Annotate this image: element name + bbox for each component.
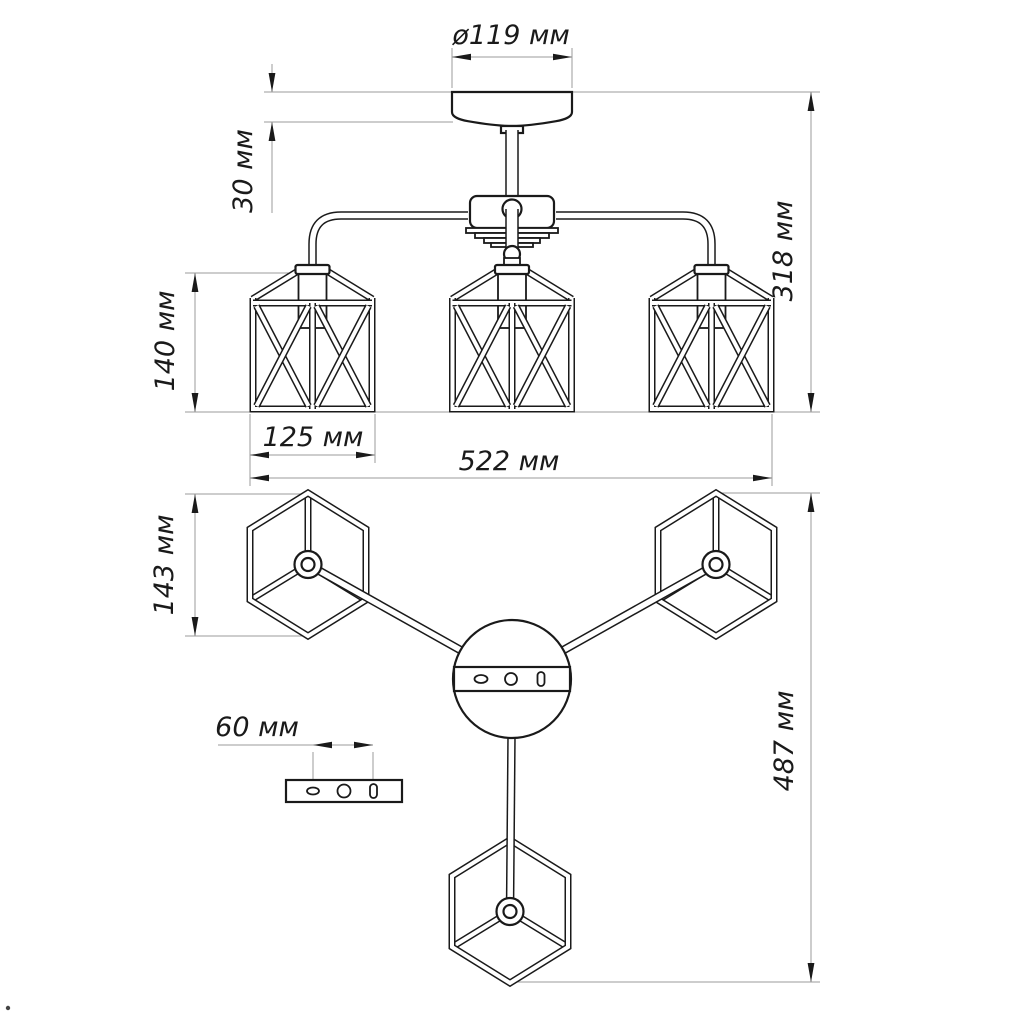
elevation-view — [253, 92, 772, 409]
plan-ring-right — [703, 551, 730, 578]
technical-drawing-canvas: ø119 мм 30 мм 318 мм 140 мм 125 мм — [0, 0, 1024, 1024]
dim-label-shade-width: 125 мм — [263, 422, 364, 453]
plan-hole-oval — [475, 675, 488, 683]
bracket-hole-round — [338, 785, 351, 798]
chandelier-dimension-drawing: ø119 мм 30 мм 318 мм 140 мм 125 мм — [0, 0, 1024, 1024]
dim-label-shade-height-front: 140 мм — [150, 291, 181, 392]
dim-label-mount-hole-spacing: 60 мм — [215, 712, 299, 743]
dim-mount-hole-spacing: 60 мм — [215, 712, 373, 780]
cage-shade-left — [253, 265, 373, 409]
plan-ring-left — [295, 551, 322, 578]
dim-shade-height-plan: 143 мм — [149, 494, 310, 636]
plan-hole-round — [505, 673, 517, 685]
dim-label-shade-height-plan: 143 мм — [149, 515, 180, 616]
cage-shade-middle — [452, 265, 572, 409]
arm-left — [313, 216, 469, 273]
mount-bracket-detail — [286, 780, 402, 802]
bracket-hole-oval — [307, 788, 319, 795]
dim-label-fixture-width: 522 мм — [459, 446, 560, 477]
cage-shade-right — [652, 265, 772, 409]
bracket-hole-slot — [370, 784, 377, 798]
corner-mark — [6, 1006, 10, 1010]
plan-ring-bottom — [497, 898, 524, 925]
dim-canopy-diameter: ø119 мм — [451, 20, 572, 88]
plan-view — [250, 493, 774, 983]
dim-label-fixture-height: 318 мм — [768, 201, 799, 302]
dim-label-fixture-span-plan: 487 мм — [769, 691, 800, 792]
plan-hole-slot — [538, 672, 545, 686]
dim-label-canopy-diameter: ø119 мм — [451, 20, 569, 51]
ceiling-canopy — [452, 92, 572, 126]
dim-canopy-offset: 30 мм — [228, 64, 453, 213]
arm-right — [556, 216, 712, 273]
dim-label-canopy-offset: 30 мм — [228, 129, 259, 213]
